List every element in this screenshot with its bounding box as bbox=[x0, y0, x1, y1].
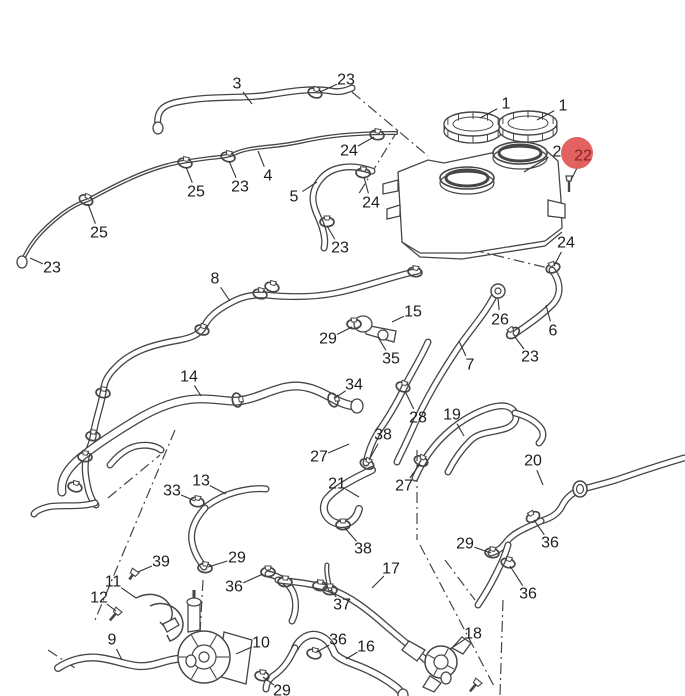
callout-leader bbox=[138, 566, 152, 572]
callout-leader bbox=[328, 444, 349, 453]
callout-label-27[interactable]: 27 bbox=[310, 449, 328, 466]
callout-label-25[interactable]: 25 bbox=[187, 184, 205, 201]
callout-label-29[interactable]: 29 bbox=[456, 536, 474, 553]
callout-leader bbox=[88, 204, 95, 224]
callout-label-20[interactable]: 20 bbox=[524, 453, 542, 470]
callout-leader bbox=[210, 486, 226, 494]
callout-label-1[interactable]: 1 bbox=[559, 98, 568, 115]
callout-label-2[interactable]: 2 bbox=[553, 144, 562, 161]
callout-label-38[interactable]: 38 bbox=[354, 541, 372, 558]
callout-leader bbox=[346, 652, 357, 659]
callout-label-8[interactable]: 8 bbox=[211, 271, 220, 288]
callout-label-23[interactable]: 23 bbox=[231, 179, 249, 196]
callout-leader bbox=[208, 561, 227, 567]
callout-leader bbox=[345, 528, 356, 541]
callout-label-7[interactable]: 7 bbox=[466, 357, 475, 374]
callout-leader bbox=[498, 298, 499, 310]
callout-leader bbox=[327, 226, 335, 239]
callout-leader bbox=[358, 137, 374, 146]
callout-leader bbox=[258, 151, 264, 167]
callout-label-23[interactable]: 23 bbox=[521, 349, 539, 366]
callout-leader bbox=[405, 391, 414, 409]
callout-label-25[interactable]: 25 bbox=[90, 225, 108, 242]
callout-label-17[interactable]: 17 bbox=[382, 561, 400, 578]
callout-label-36[interactable]: 36 bbox=[329, 632, 347, 649]
callout-label-23[interactable]: 23 bbox=[337, 72, 355, 89]
callout-leader bbox=[510, 566, 523, 586]
callout-label-34[interactable]: 34 bbox=[345, 377, 363, 394]
callout-label-3[interactable]: 3 bbox=[233, 76, 242, 93]
callout-label-36[interactable]: 36 bbox=[519, 586, 537, 603]
callout-label-4[interactable]: 4 bbox=[264, 168, 273, 185]
callout-label-36[interactable]: 36 bbox=[541, 535, 559, 552]
callout-label-37[interactable]: 37 bbox=[333, 597, 351, 614]
callout-label-29[interactable]: 29 bbox=[319, 331, 337, 348]
parts-diagram: 3231122224252345242325232482662315293571… bbox=[0, 0, 685, 696]
callout-label-29[interactable]: 29 bbox=[273, 683, 291, 696]
callout-label-39[interactable]: 39 bbox=[152, 554, 170, 571]
callout-label-38[interactable]: 38 bbox=[374, 427, 392, 444]
callout-leader bbox=[243, 574, 263, 583]
callout-label-9[interactable]: 9 bbox=[108, 632, 117, 649]
callout-leader bbox=[392, 316, 404, 322]
callout-leader bbox=[346, 489, 359, 497]
callout-leader bbox=[229, 161, 236, 178]
callout-label-21[interactable]: 21 bbox=[328, 476, 346, 493]
callout-leader bbox=[337, 327, 352, 335]
callout-label-28[interactable]: 28 bbox=[409, 410, 427, 427]
callout-label-16[interactable]: 16 bbox=[357, 639, 375, 656]
callout-label-23[interactable]: 23 bbox=[43, 260, 61, 277]
callout-label-35[interactable]: 35 bbox=[382, 351, 400, 368]
callout-label-33[interactable]: 33 bbox=[163, 483, 181, 500]
callout-label-18[interactable]: 18 bbox=[464, 626, 482, 643]
callout-label-11[interactable]: 11 bbox=[105, 574, 122, 591]
callout-label-19[interactable]: 19 bbox=[443, 407, 461, 424]
callout-label-24[interactable]: 24 bbox=[557, 235, 575, 252]
callout-label-22[interactable]: 22 bbox=[574, 148, 592, 165]
callout-label-14[interactable]: 14 bbox=[180, 369, 198, 386]
callout-label-15[interactable]: 15 bbox=[404, 304, 422, 321]
callout-leader bbox=[186, 167, 192, 183]
callout-label-10[interactable]: 10 bbox=[252, 635, 270, 652]
callout-label-6[interactable]: 6 bbox=[549, 323, 558, 340]
callout-label-12[interactable]: 12 bbox=[90, 590, 108, 607]
callout-label-26[interactable]: 26 bbox=[491, 312, 509, 329]
callout-label-29[interactable]: 29 bbox=[228, 550, 246, 567]
callout-leader bbox=[194, 385, 201, 396]
callout-label-36[interactable]: 36 bbox=[225, 579, 243, 596]
callout-label-5[interactable]: 5 bbox=[290, 189, 299, 206]
callout-leader bbox=[107, 604, 116, 611]
callout-label-24[interactable]: 24 bbox=[362, 195, 380, 212]
parts-diagram-page: 3231122224252345242325232482662315293571… bbox=[0, 0, 685, 696]
callout-label-24[interactable]: 24 bbox=[340, 143, 358, 160]
callout-label-27[interactable]: 27 bbox=[395, 478, 413, 495]
callout-leader bbox=[372, 576, 384, 588]
callout-leader bbox=[221, 287, 230, 301]
callout-leader bbox=[537, 470, 543, 485]
callout-leader bbox=[121, 588, 136, 598]
callout-label-1[interactable]: 1 bbox=[502, 96, 511, 113]
callout-leader bbox=[30, 258, 43, 264]
callout-leader bbox=[317, 645, 329, 652]
callout-label-23[interactable]: 23 bbox=[331, 240, 349, 257]
callout-leader bbox=[515, 337, 524, 349]
callout-label-13[interactable]: 13 bbox=[192, 473, 210, 490]
